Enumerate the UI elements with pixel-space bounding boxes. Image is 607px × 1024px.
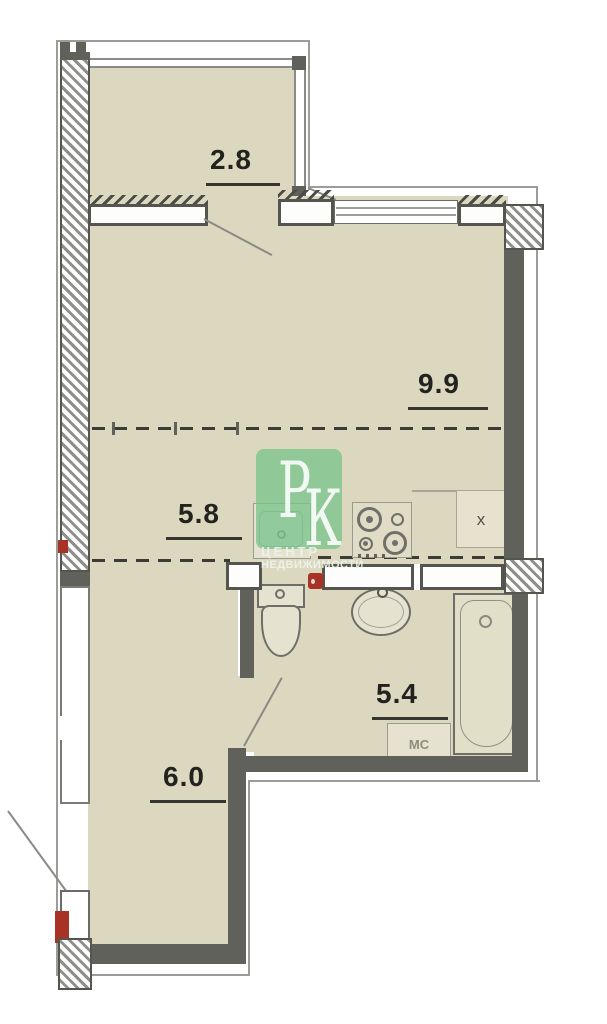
glazing-corner-cap <box>292 56 306 70</box>
stove-burner-dot-3 <box>363 541 368 546</box>
top-wall-serration-c <box>458 195 506 204</box>
balcony-area-underline <box>206 183 280 186</box>
top-wall-segment-c <box>458 204 506 226</box>
bottom-left-column-hatched <box>58 938 92 990</box>
kitchen-area-label: 5.8 <box>178 500 220 528</box>
entrance-door-swing <box>7 810 69 895</box>
bathroom-area-underline <box>372 717 448 720</box>
left-wall-anchor-1 <box>60 42 70 54</box>
window-inner-line-2 <box>336 214 456 216</box>
balcony-glazing-right <box>294 58 306 192</box>
hallway-area-label: 6.0 <box>163 763 205 791</box>
zone-divider-living-kitchen <box>92 427 506 430</box>
window-inner-line-1 <box>336 207 456 209</box>
bathtub-drain-icon <box>479 615 492 628</box>
balcony-wall-segment-a <box>88 204 208 226</box>
stove-burner-dot-1 <box>366 516 373 523</box>
living-room-window <box>334 200 458 224</box>
zone-divider-kitchen-hallway <box>92 559 230 562</box>
left-wall-niche <box>60 586 90 804</box>
balcony-wall-segment-b <box>278 199 334 226</box>
outer-contour-right <box>536 186 538 782</box>
outer-contour-balcony-right <box>308 40 310 190</box>
left-wall-red-mark <box>58 540 68 553</box>
zone-divider-tick-1 <box>112 422 115 435</box>
right-wall-upper <box>504 250 524 564</box>
washing-machine-label: МС <box>409 737 429 752</box>
kitchen-area-underline <box>166 537 242 540</box>
left-wall-lower-cap <box>60 572 90 586</box>
stove-burner-icon-2 <box>391 513 404 526</box>
bathroom-bottom-wall <box>242 756 528 772</box>
vent-shaft-label: x <box>477 511 486 528</box>
stove-burner-dot-4 <box>392 540 398 546</box>
bathroom-corner-wall <box>226 562 262 590</box>
watermark-text-line2: НЕДВИЖИМОСТИ <box>261 560 364 571</box>
outer-contour-top <box>56 40 310 42</box>
stove-knob-1 <box>358 554 361 558</box>
balcony-wall-serration-b <box>278 190 334 199</box>
zone-divider-tick-2 <box>174 422 177 435</box>
bathroom-right-wall <box>512 594 528 760</box>
hallway-area-underline <box>150 800 226 803</box>
balcony-wall-serration-a <box>88 195 208 204</box>
watermark-text-line1: ЦЕНТР <box>261 545 320 558</box>
stove-knob-3 <box>374 554 377 558</box>
left-wall-anchor-2 <box>76 42 86 54</box>
balcony-area-label: 2.8 <box>210 146 252 174</box>
outer-contour-bath-bottom <box>248 780 540 782</box>
balcony-glazing-top <box>76 58 306 68</box>
toilet-button-icon <box>275 589 285 599</box>
bathroom-sink-inner <box>358 596 404 628</box>
vent-shaft-box: x <box>456 490 506 548</box>
living-area-label: 9.9 <box>418 370 460 398</box>
corner-column-hatched <box>504 204 544 250</box>
stove-knob-2 <box>366 554 369 558</box>
bathroom-top-wall-segment-2 <box>420 564 504 590</box>
outer-contour-top-right <box>310 186 538 188</box>
hallway-floor <box>88 563 238 948</box>
outer-contour-left <box>56 40 58 976</box>
bathroom-left-wall <box>240 590 254 678</box>
bathroom-wall-red-marker-dot <box>311 579 315 584</box>
left-wall-hatched <box>60 52 90 572</box>
outer-contour-hall-right <box>248 780 250 976</box>
stove-knob-4 <box>382 554 385 558</box>
zone-divider-tick-3 <box>236 422 239 435</box>
balcony-floor <box>88 66 296 198</box>
hallway-bottom-wall <box>82 944 232 964</box>
bathroom-area-label: 5.4 <box>376 680 418 708</box>
floor-plan: x МС <box>0 0 607 1024</box>
living-area-underline <box>408 407 488 410</box>
counter-edge-line <box>412 490 458 492</box>
right-wall-hatched-block <box>504 558 544 594</box>
hallway-right-wall <box>228 748 246 964</box>
left-wall-niche-break <box>58 716 64 740</box>
